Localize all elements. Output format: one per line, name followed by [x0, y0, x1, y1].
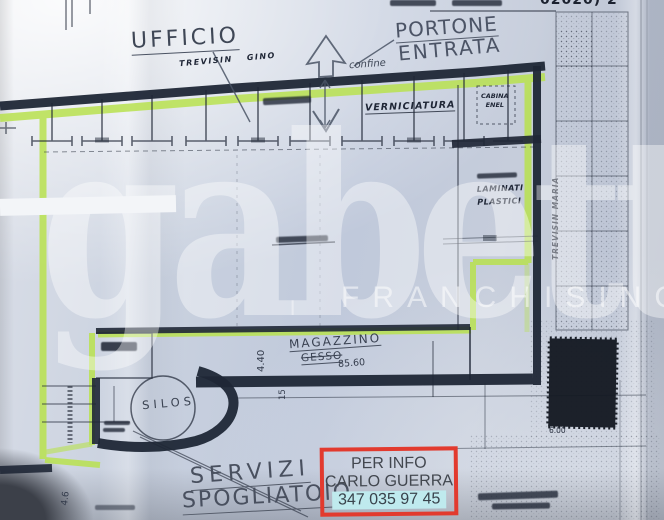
tiny-text-smudge — [103, 428, 125, 432]
top-text-smudge — [390, 0, 436, 6]
tiny-text-smudge — [104, 421, 130, 425]
room-label-laminati-plastici: LAMINATI PLASTICI — [477, 181, 525, 209]
dimension-600: 6.00 — [549, 426, 566, 435]
owner-name-trevisin-maria: TREVISIN MARIA — [551, 177, 560, 260]
dimension-8560: 85.60 — [338, 357, 366, 370]
room-label-ufficio: UFFICIO — [130, 23, 239, 56]
cabina-line2: ENEL — [481, 101, 509, 110]
top-text-smudge — [452, 0, 502, 6]
room-label-smudge — [101, 342, 137, 351]
dimension-440: 4.40 — [256, 350, 267, 372]
floor-plan-photo: 02020) 2 UFFICIO TREVISIN GINO PORTONE E… — [0, 0, 664, 520]
info-line1: PER INFO — [351, 454, 427, 473]
stamp-smudge — [492, 502, 550, 509]
cabina-line1: CABINA — [481, 92, 509, 101]
sheet-number-fragment: 02020) 2 — [540, 0, 618, 8]
contact-info-box: PER INFO CARLO GUERRA 347 035 97 45 — [320, 446, 459, 516]
up-arrow-icon — [307, 36, 345, 77]
double-arrow-icon — [320, 80, 330, 128]
floor-plan-drawing — [0, 0, 664, 520]
laminati-line2: PLASTICI — [477, 194, 524, 209]
contact-phone: 347 035 97 45 — [332, 490, 447, 509]
contact-name: CARLO GUERRA — [325, 472, 453, 491]
edge-smudge — [95, 505, 135, 510]
room-label-cabina-enel: CABINA ENEL — [481, 92, 509, 110]
dimension-46: 4.6 — [60, 491, 72, 506]
dimension-15: 15 — [278, 389, 288, 400]
